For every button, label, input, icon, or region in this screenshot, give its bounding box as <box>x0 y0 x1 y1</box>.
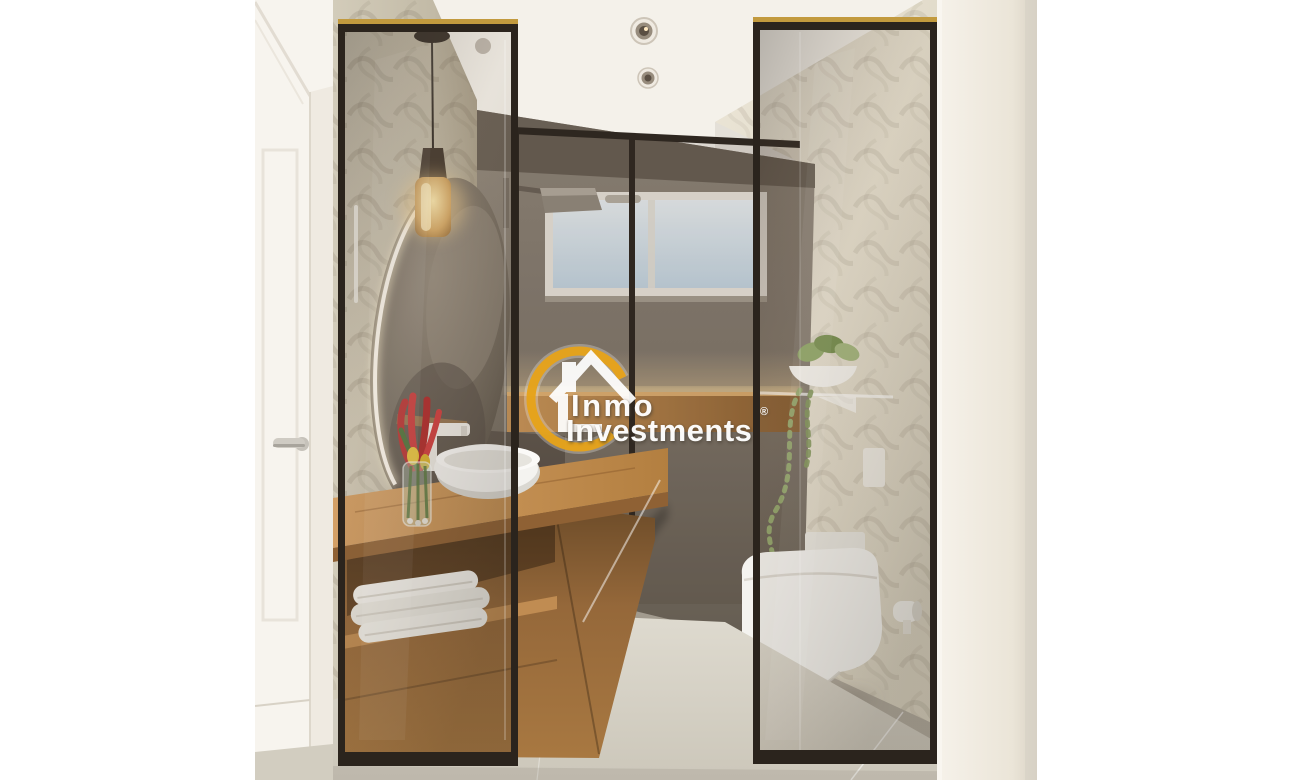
interior-door <box>255 0 333 780</box>
spotlight-icon <box>631 18 657 44</box>
page: Inmo Investments ® <box>0 0 1290 780</box>
glass-door-left <box>338 19 518 766</box>
glass-partition-right <box>753 17 937 764</box>
door-casing <box>310 86 333 750</box>
bathroom-render: Inmo Investments ® <box>255 0 1037 780</box>
frame-gold-edge <box>338 19 518 24</box>
door-pull-bar <box>354 205 358 303</box>
frame-gold-edge <box>753 17 937 22</box>
bathroom-scene <box>255 0 1037 780</box>
spotlight-icon <box>638 68 658 88</box>
wall-pillar <box>937 0 1037 780</box>
